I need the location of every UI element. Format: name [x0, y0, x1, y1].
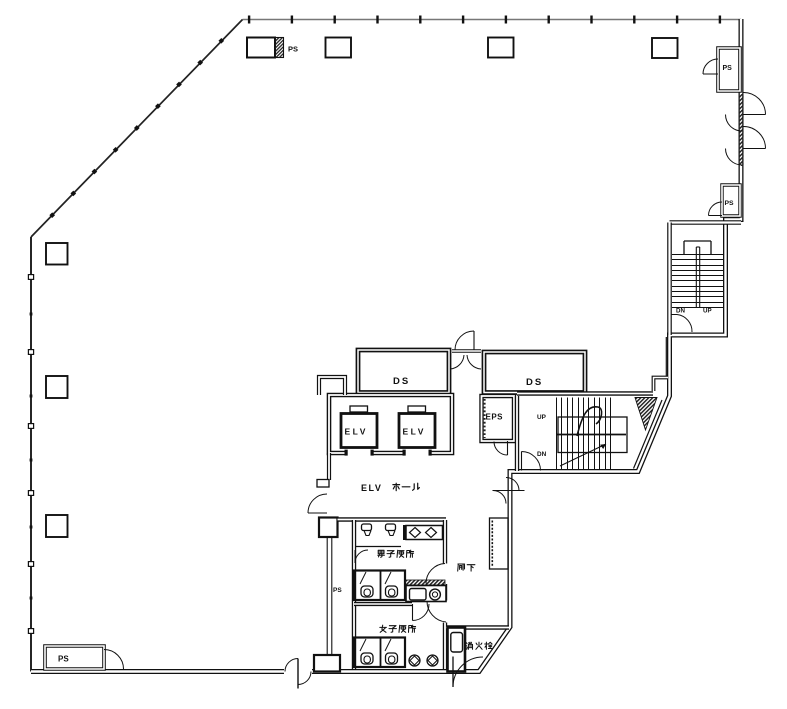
- svg-text:UP: UP: [703, 308, 712, 315]
- svg-text:PS: PS: [333, 587, 342, 594]
- svg-text:PS: PS: [58, 655, 69, 664]
- svg-text:DN: DN: [676, 308, 685, 315]
- svg-text:ELV: ELV: [403, 427, 426, 437]
- svg-text:PS: PS: [725, 200, 735, 207]
- svg-text:PS: PS: [723, 65, 733, 72]
- svg-text:DN: DN: [537, 451, 547, 458]
- svg-text:PS: PS: [288, 45, 298, 54]
- svg-text:EPS: EPS: [486, 413, 504, 422]
- svg-text:ELV: ELV: [361, 483, 382, 493]
- svg-text:UP: UP: [537, 414, 547, 421]
- svg-text:ELV: ELV: [345, 427, 368, 437]
- svg-text:DS: DS: [393, 376, 410, 387]
- svg-text:DS: DS: [526, 377, 543, 388]
